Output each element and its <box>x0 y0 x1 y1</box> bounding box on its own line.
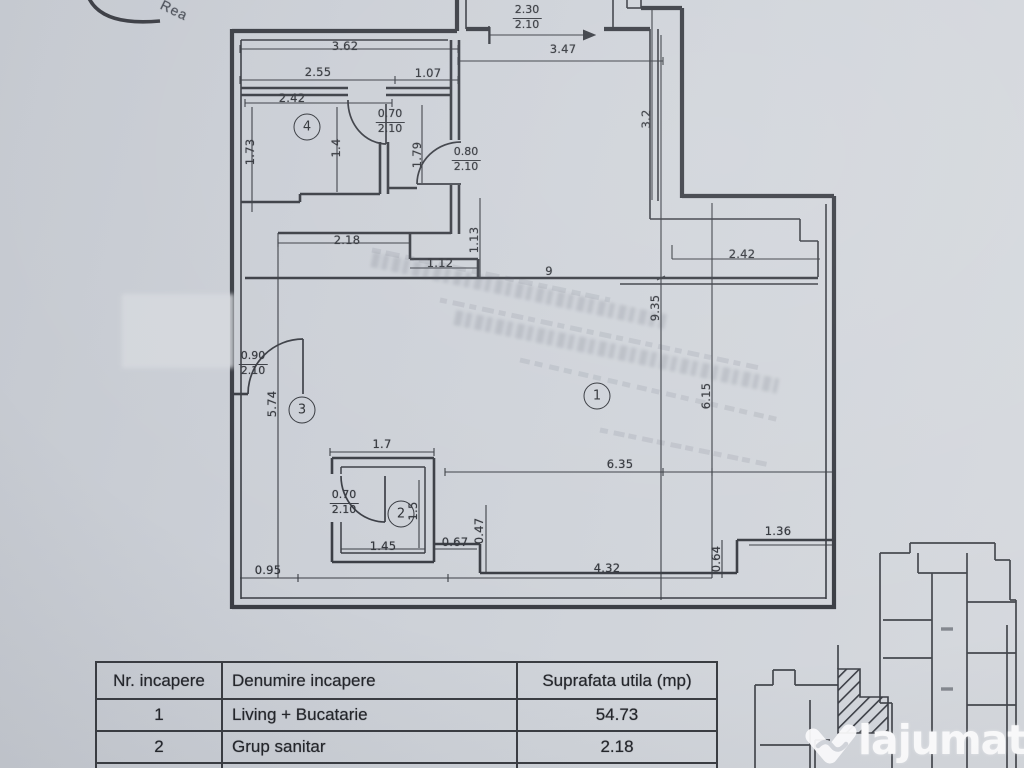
cell-room-number: 2 <box>96 731 222 763</box>
dimension-label: 3.62 <box>332 39 359 53</box>
table-row: 2Grup sanitar2.18 <box>96 731 717 763</box>
cell-room-area: 5.45 <box>517 763 717 768</box>
dimension-label: 0.67 <box>442 535 469 549</box>
dimension-label: 5.74 <box>265 391 279 418</box>
col-header-room-number: Nr. incapere <box>96 662 222 699</box>
dimension-label: 3.47 <box>550 42 577 56</box>
interior-walls <box>232 40 834 573</box>
dimension-label: 6.35 <box>607 457 634 471</box>
door-width-value: 0.70 <box>376 108 405 123</box>
dimension-label: 1.36 <box>765 524 792 538</box>
dimension-label: 1.45 <box>370 539 397 553</box>
dimension-label: 1.12 <box>427 256 454 270</box>
cell-room-number: 1 <box>96 699 222 731</box>
dimension-label: 1.73 <box>243 139 257 166</box>
dimension-label: 9.35 <box>648 295 662 322</box>
cell-room-number: 3 <box>96 763 222 768</box>
door-size-label: 0.902.10 <box>239 350 268 377</box>
dimension-label: 1.79 <box>410 142 424 169</box>
dimension-label: 2.42 <box>279 91 306 105</box>
dimension-label: 6.15 <box>699 383 713 410</box>
door-size-label: 0.702.10 <box>376 108 405 135</box>
dimension-label: 2.42 <box>729 247 756 261</box>
door-width-value: 0.80 <box>452 146 481 161</box>
room-number-marker: 2 <box>388 501 415 528</box>
dimension-label: 1.7 <box>372 437 391 451</box>
door-width-value: 0.70 <box>330 489 359 504</box>
door-size-label: 0.702.10 <box>330 489 359 516</box>
door-height-value: 2.10 <box>452 161 481 174</box>
dimension-label: 1.4 <box>329 138 343 157</box>
door-height-value: 2.10 <box>330 504 359 517</box>
dimension-label: 4.32 <box>594 561 621 575</box>
door-width-value: 0.90 <box>239 350 268 365</box>
dimension-label: 2.55 <box>305 65 332 79</box>
dimension-label: 3.2 <box>639 109 653 128</box>
dimension-label: 9 <box>545 264 553 278</box>
cell-room-area: 2.18 <box>517 731 717 763</box>
room-number-marker: 1 <box>584 383 611 410</box>
diagonal-stamp-marks <box>372 250 780 465</box>
dimension-label: 1.07 <box>415 66 442 80</box>
door-height-value: 2.10 <box>513 19 542 32</box>
dimension-label: 0.47 <box>472 518 486 545</box>
door-height-value: 2.10 <box>376 123 405 136</box>
col-header-area: Suprafata utila (mp) <box>517 662 717 699</box>
room-number-marker: 4 <box>294 114 321 141</box>
table-row: 1Living + Bucatarie54.73 <box>96 699 717 731</box>
floor-plan-drawing <box>0 0 1024 768</box>
col-header-room-name: Denumire incapere <box>222 662 517 699</box>
whiteout-patch <box>122 294 234 368</box>
cell-room-area: 54.73 <box>517 699 717 731</box>
room-areas-table: Nr. incapere Denumire incapere Suprafata… <box>95 661 718 768</box>
stamp-arc <box>86 0 160 22</box>
dimension-label: 2.18 <box>334 233 361 247</box>
door-height-value: 2.10 <box>239 365 268 378</box>
table-row: 3Vestibul5.45 <box>96 763 717 768</box>
key-plan-unit-labels <box>941 629 953 689</box>
room-number-marker: 3 <box>289 397 316 424</box>
floor-plan-photo-page: Rea 3.622.551.072.421.731.41.793.473.21.… <box>0 0 1024 768</box>
dimension-label: 0.95 <box>255 563 282 577</box>
cell-room-name: Grup sanitar <box>222 731 517 763</box>
door-size-label: 2.302.10 <box>513 4 542 31</box>
dimension-label: 1.13 <box>467 227 481 254</box>
dimension-label: 0.64 <box>709 546 723 573</box>
cell-room-name: Living + Bucatarie <box>222 699 517 731</box>
key-plan <box>755 543 1016 768</box>
outer-walls <box>232 0 836 609</box>
door-width-value: 2.30 <box>513 4 542 19</box>
table-header-row: Nr. incapere Denumire incapere Suprafata… <box>96 662 717 699</box>
door-size-label: 0.802.10 <box>452 146 481 173</box>
cell-room-name: Vestibul <box>222 763 517 768</box>
